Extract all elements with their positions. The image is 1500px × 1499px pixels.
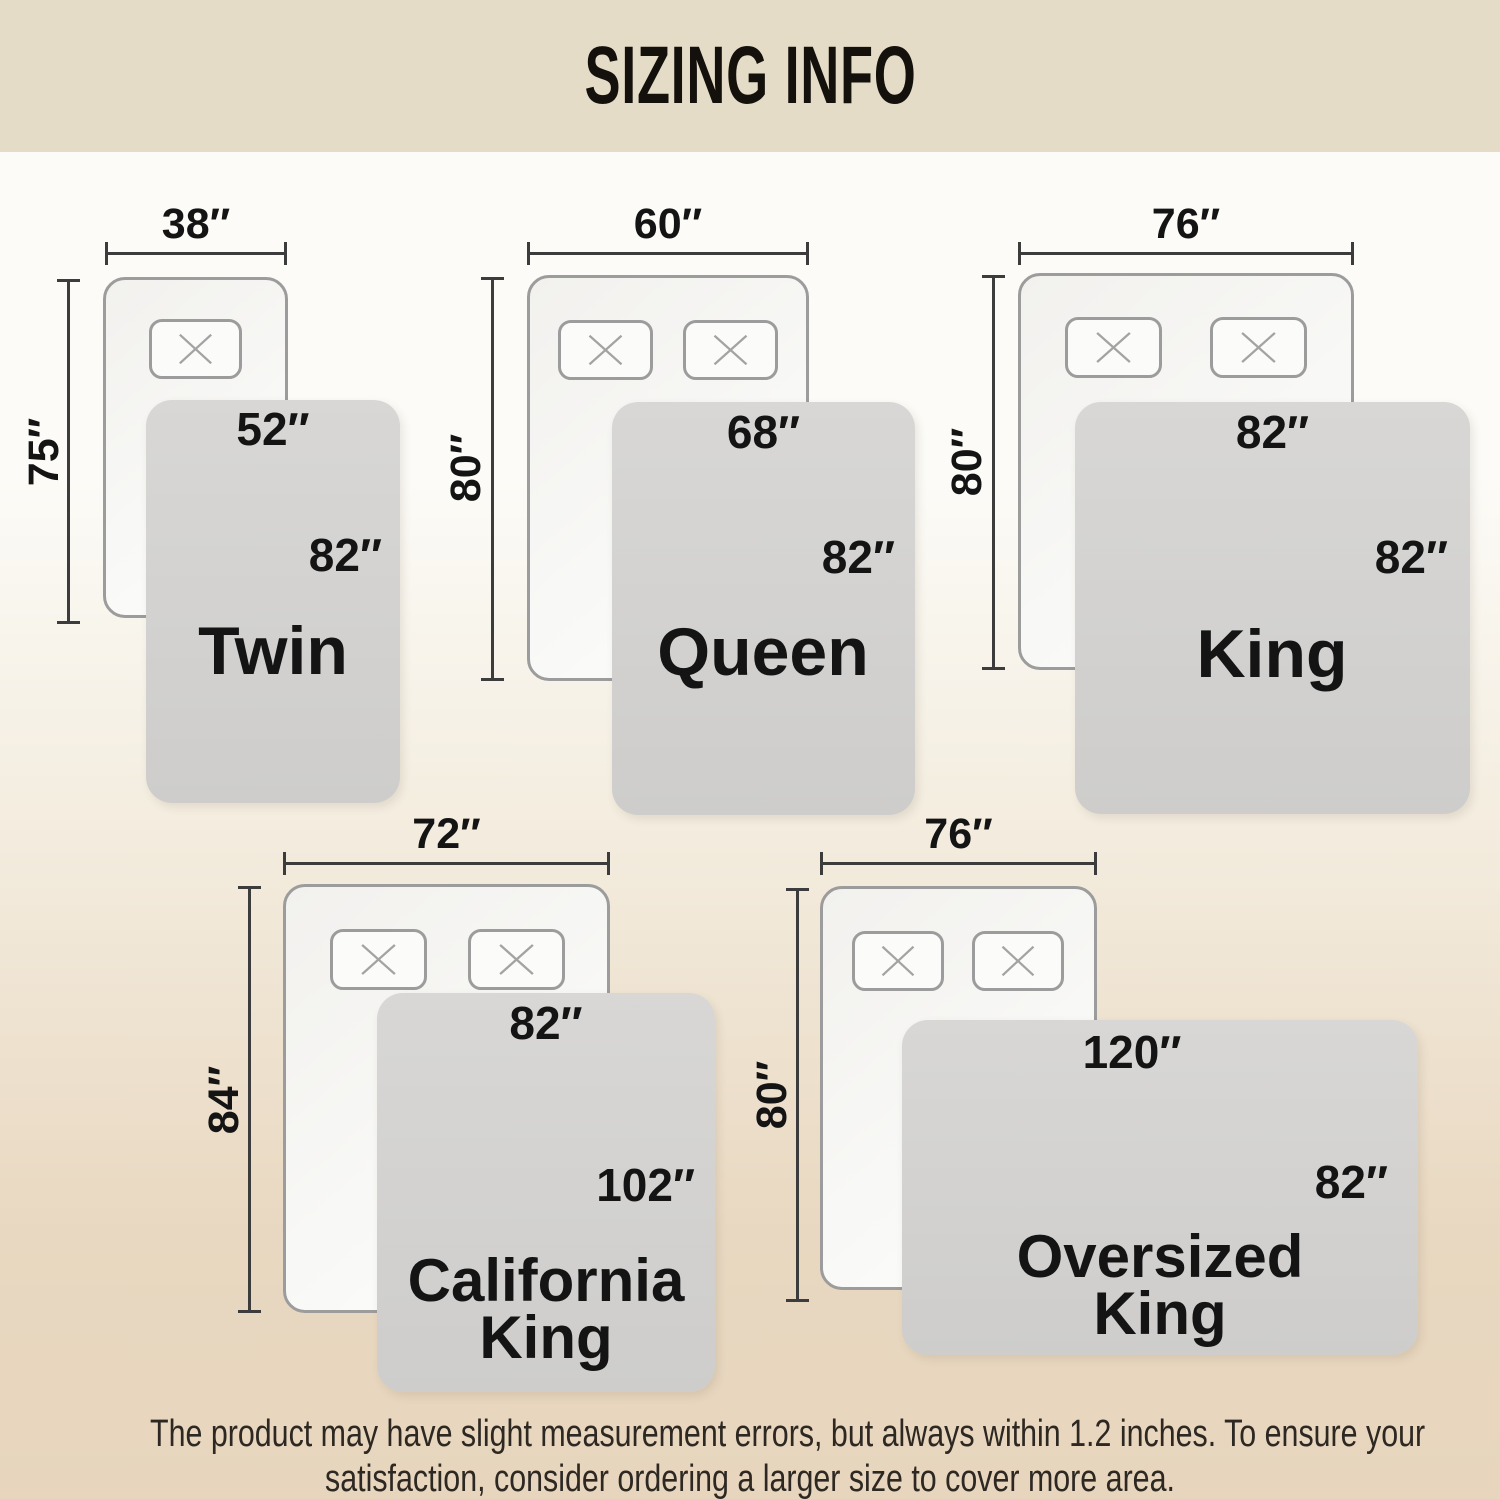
width-dimension-line: [527, 252, 809, 255]
bed-name: Queen: [613, 618, 913, 686]
mattress-length-label: 75″: [20, 418, 68, 486]
pillow: [852, 931, 944, 991]
mattress-length-label: 80″: [943, 428, 991, 496]
blanket-length-label: 82″: [902, 1155, 1388, 1209]
blanket-length-label: 102″: [377, 1158, 695, 1212]
bed-name-line2: King: [1010, 1285, 1310, 1342]
length-dimension-line: [992, 275, 995, 670]
width-dimension-line: [105, 252, 287, 255]
bed-name: Twin: [123, 617, 423, 685]
length-dimension-line: [248, 886, 251, 1313]
mattress-width-label: 72″: [283, 810, 610, 858]
header-band: SIZING INFO: [0, 0, 1500, 152]
pillow: [149, 319, 242, 379]
blanket-width-label: 52″: [146, 402, 400, 456]
blanket-width-label: 82″: [377, 996, 715, 1050]
footer-line-2: satisfaction, consider ordering a larger…: [150, 1457, 1350, 1499]
bed-name: CaliforniaKing: [396, 1252, 696, 1366]
pillow: [1065, 317, 1162, 378]
width-dimension-line: [283, 862, 610, 865]
mattress-length-label: 80″: [442, 434, 490, 502]
mattress-length-label: 84″: [200, 1066, 248, 1134]
mattress-width-label: 38″: [105, 200, 287, 248]
pillow: [558, 320, 653, 380]
bed-name-line1: California: [396, 1252, 696, 1309]
pillow: [1210, 317, 1307, 378]
pillow-x-icon: [686, 323, 775, 377]
bed-name-line2: King: [396, 1309, 696, 1366]
blanket: [612, 402, 915, 815]
bed-name-line1: Oversized: [1010, 1228, 1310, 1285]
bed-name: OversizedKing: [1010, 1228, 1310, 1342]
mattress-width-label: 76″: [1018, 200, 1354, 248]
pillow: [330, 929, 427, 990]
blanket: [1075, 402, 1470, 814]
length-dimension-line: [67, 279, 70, 624]
bed-name-line1: King: [1122, 620, 1422, 688]
pillow-x-icon: [471, 932, 562, 987]
bed-name-line1: Twin: [123, 617, 423, 685]
blanket-width-label: 68″: [612, 405, 915, 459]
page-title: SIZING INFO: [584, 29, 916, 123]
pillow-x-icon: [975, 934, 1061, 988]
pillow-x-icon: [561, 323, 650, 377]
pillow: [468, 929, 565, 990]
length-dimension-line: [796, 888, 799, 1302]
pillow: [683, 320, 778, 380]
pillow-x-icon: [1213, 320, 1304, 375]
pillow-x-icon: [855, 934, 941, 988]
blanket: [146, 400, 400, 803]
pillow: [972, 931, 1064, 991]
blanket-length-label: 82″: [1075, 530, 1448, 584]
footer-line-1: The product may have slight measurement …: [150, 1412, 1350, 1457]
bed-name: King: [1122, 620, 1422, 688]
pillow-x-icon: [1068, 320, 1159, 375]
blanket-length-label: 82″: [612, 530, 895, 584]
width-dimension-line: [1018, 252, 1354, 255]
mattress-length-label: 80″: [748, 1061, 796, 1129]
length-dimension-line: [491, 277, 494, 681]
blanket-length-label: 82″: [146, 528, 382, 582]
blanket-width-label: 82″: [1075, 405, 1470, 459]
sizing-info-page: SIZING INFO 38″ 75″ 52″ 82″ Twin 60″ 80″…: [0, 0, 1500, 1499]
blanket-width-label: 120″: [902, 1025, 1362, 1079]
pillow-x-icon: [333, 932, 424, 987]
width-dimension-line: [820, 862, 1097, 865]
bed-name-line1: Queen: [613, 618, 913, 686]
mattress-width-label: 76″: [820, 810, 1097, 858]
mattress-width-label: 60″: [527, 200, 809, 248]
footer-note: The product may have slight measurement …: [0, 1412, 1500, 1499]
pillow-x-icon: [152, 322, 239, 376]
